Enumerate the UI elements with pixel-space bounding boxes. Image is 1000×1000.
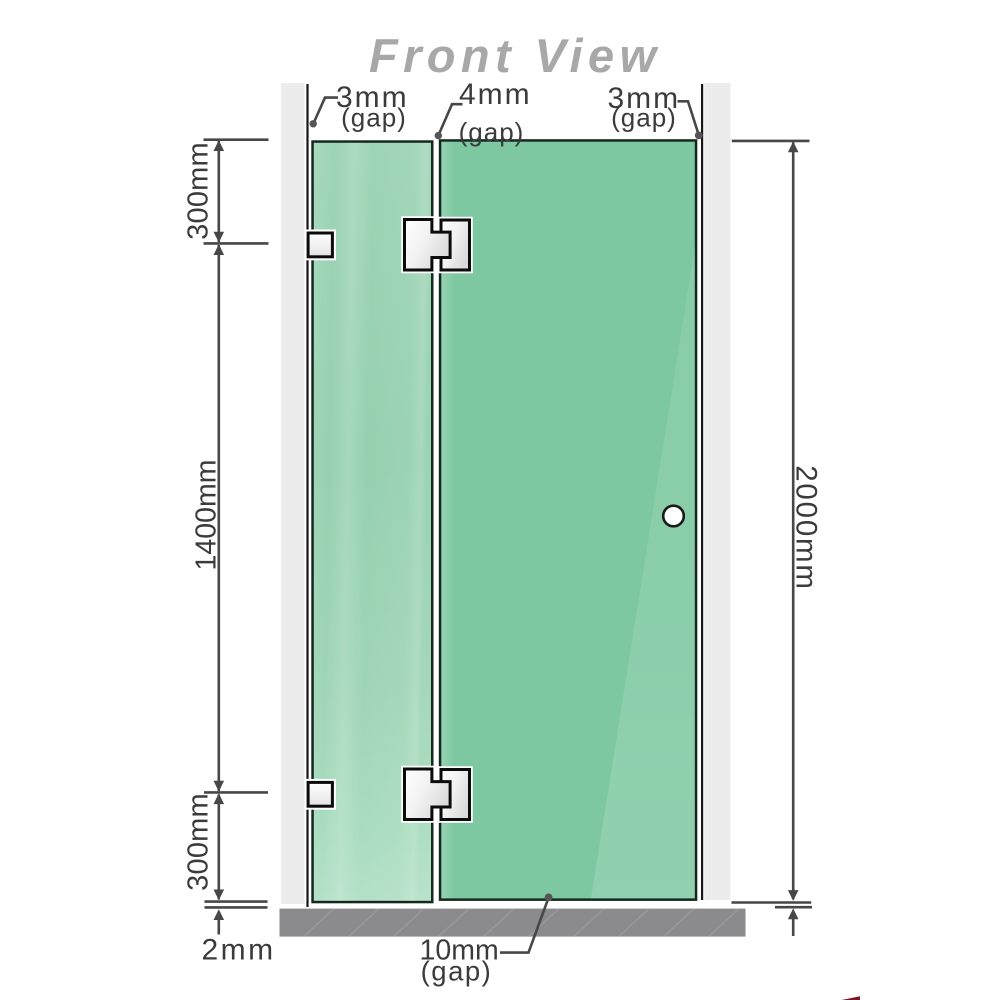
svg-text:(gap): (gap) (611, 103, 677, 133)
svg-text:300mm: 300mm (183, 142, 215, 240)
svg-text:2mm: 2mm (202, 934, 276, 967)
svg-text:300mm: 300mm (183, 793, 215, 891)
svg-text:(gap): (gap) (421, 956, 493, 987)
svg-text:(gap): (gap) (459, 117, 525, 147)
svg-text:1400mm: 1400mm (191, 460, 223, 571)
svg-text:(gap): (gap) (341, 103, 407, 133)
svg-text:4mm: 4mm (459, 78, 532, 111)
svg-text:2000mm: 2000mm (790, 465, 823, 591)
svg-text:Front View: Front View (369, 29, 662, 82)
